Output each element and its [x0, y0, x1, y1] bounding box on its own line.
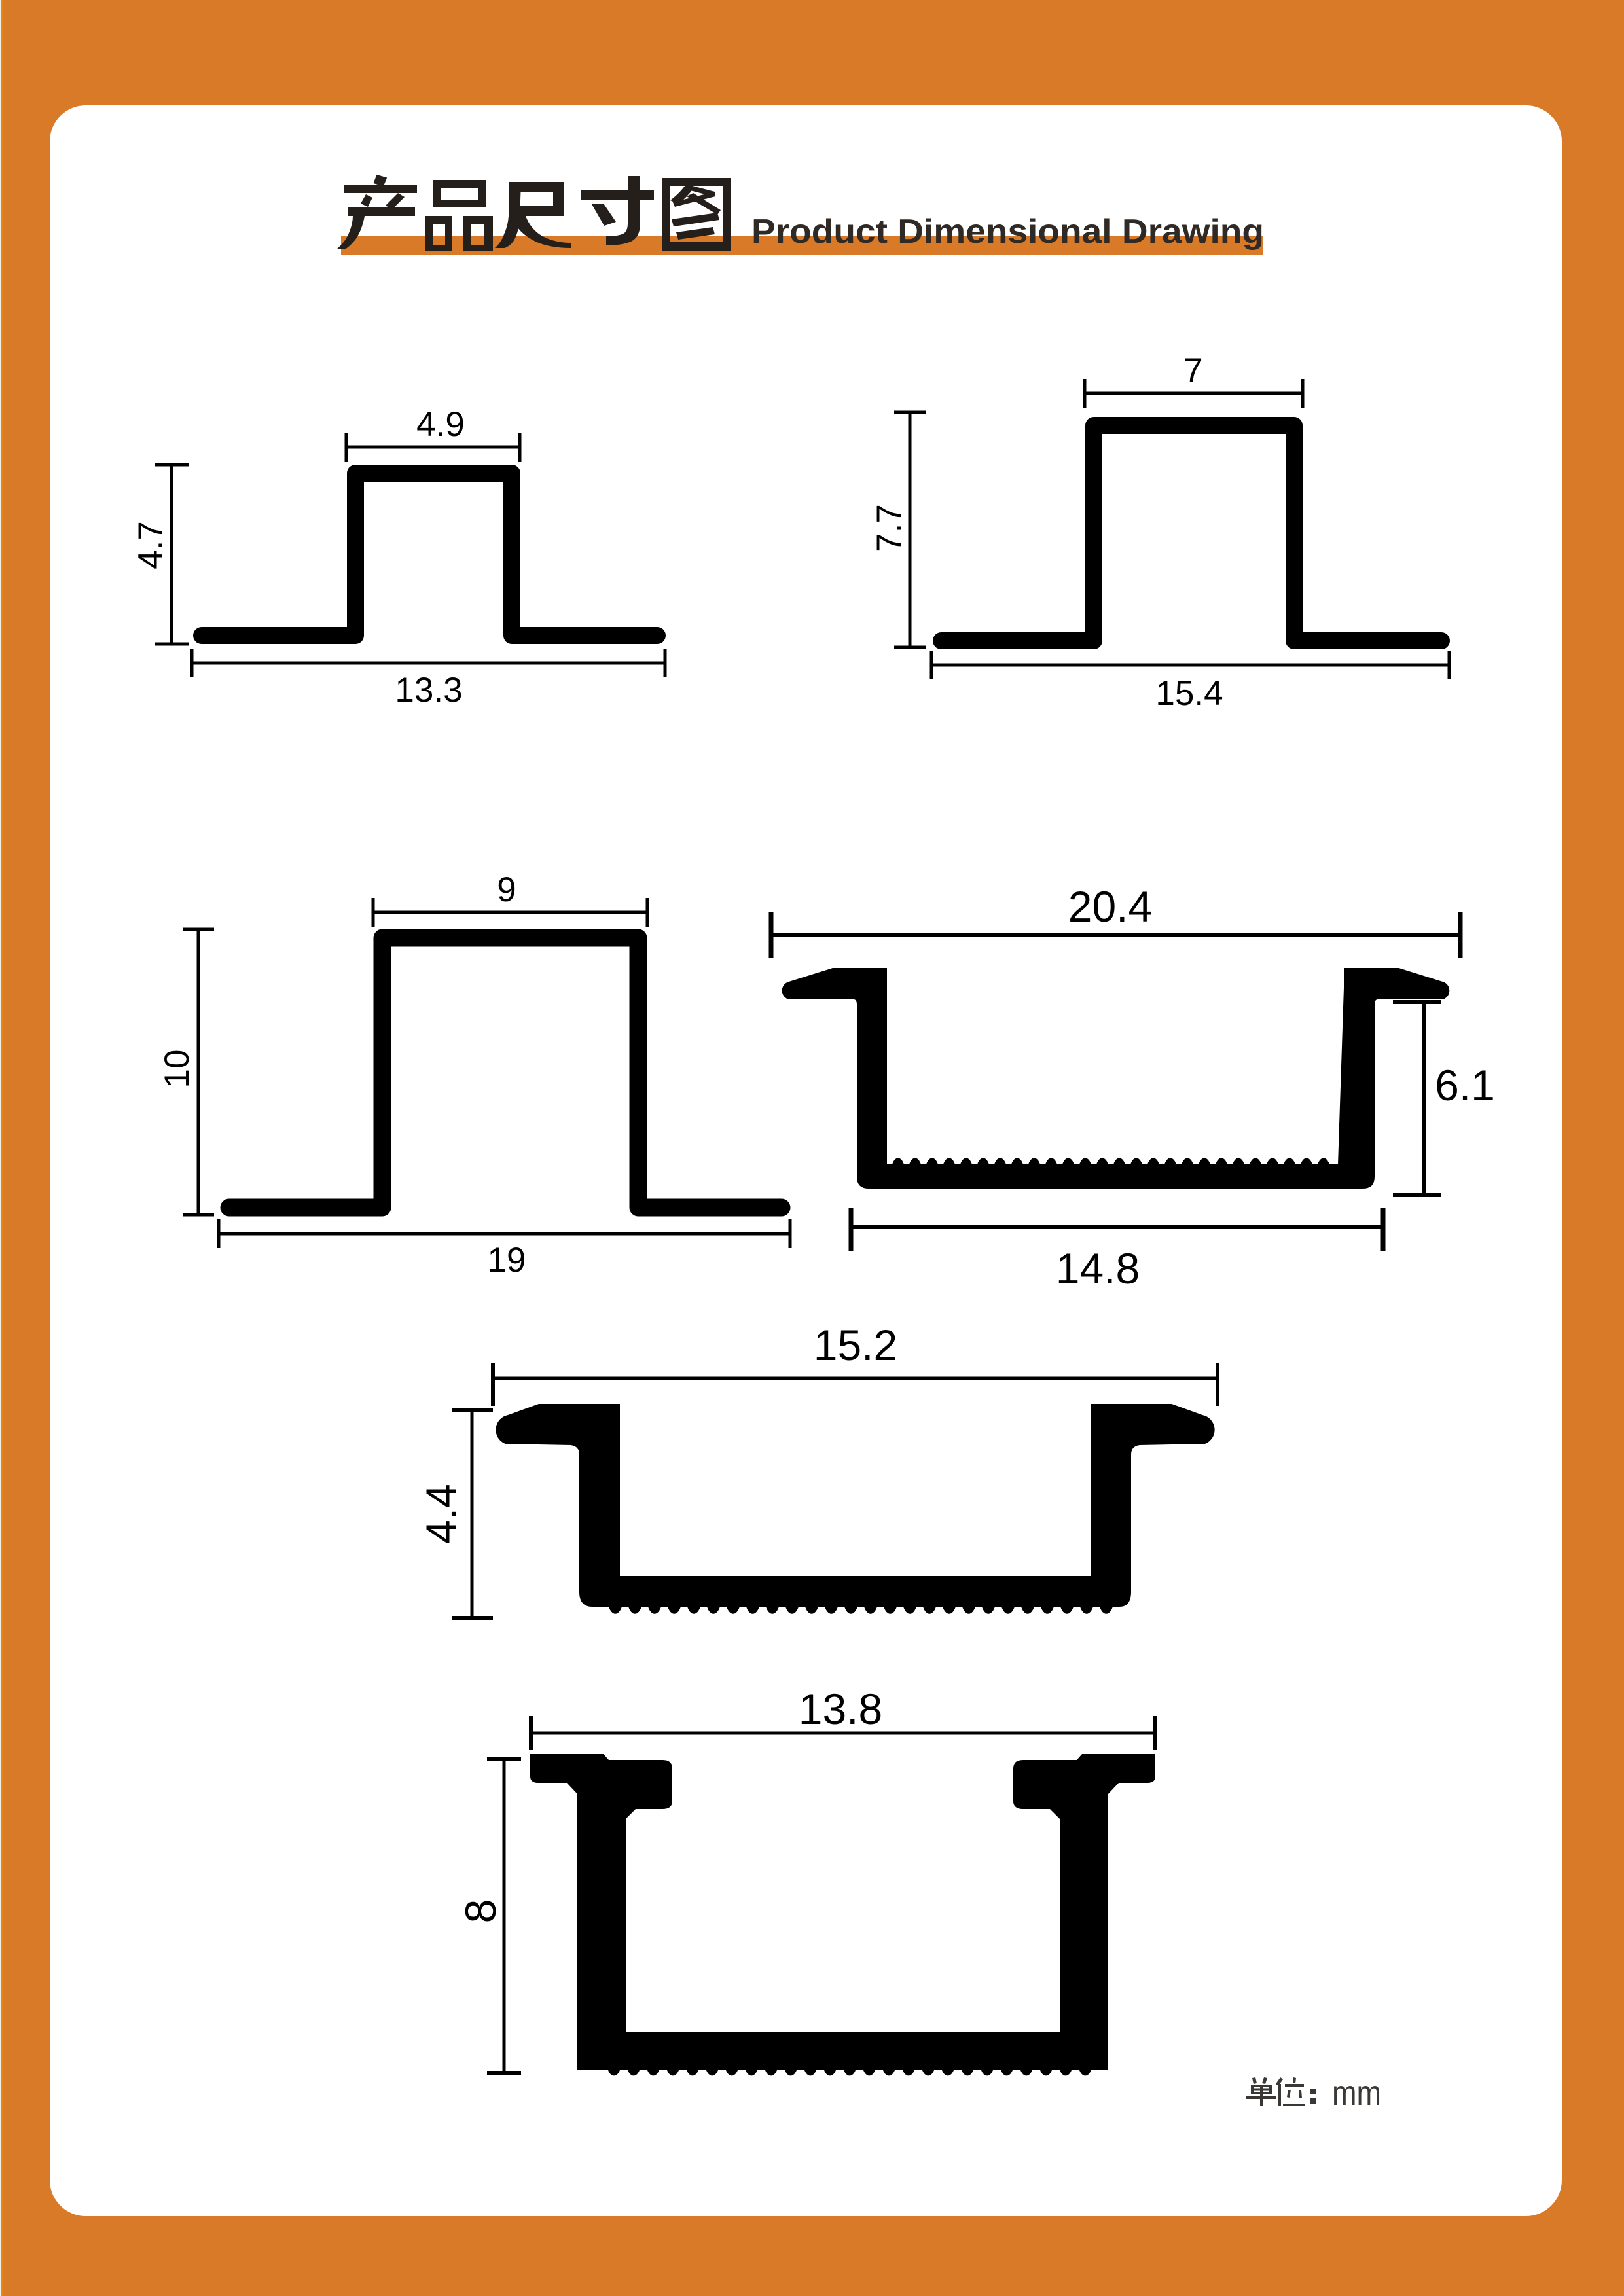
- svg-text:4.4: 4.4: [417, 1484, 465, 1544]
- svg-text:13.3: 13.3: [395, 671, 462, 709]
- svg-text:7.7: 7.7: [870, 504, 909, 552]
- svg-text:10: 10: [158, 1050, 196, 1088]
- svg-text:19: 19: [488, 1241, 526, 1280]
- svg-text:9: 9: [497, 870, 516, 909]
- svg-text:20.4: 20.4: [1068, 882, 1152, 931]
- svg-text:Product Dimensional Drawing: Product Dimensional Drawing: [751, 213, 1264, 251]
- svg-text:4.7: 4.7: [132, 521, 170, 569]
- svg-text:15.4: 15.4: [1155, 674, 1223, 713]
- svg-text:13.8: 13.8: [799, 1685, 882, 1733]
- svg-text:15.2: 15.2: [814, 1321, 897, 1369]
- svg-text:4.9: 4.9: [416, 405, 465, 444]
- svg-text:6.1: 6.1: [1435, 1061, 1495, 1109]
- svg-text:14.8: 14.8: [1056, 1244, 1140, 1293]
- svg-text:8: 8: [456, 1899, 505, 1924]
- svg-text:7: 7: [1183, 351, 1202, 390]
- svg-text:mm: mm: [1332, 2073, 1381, 2113]
